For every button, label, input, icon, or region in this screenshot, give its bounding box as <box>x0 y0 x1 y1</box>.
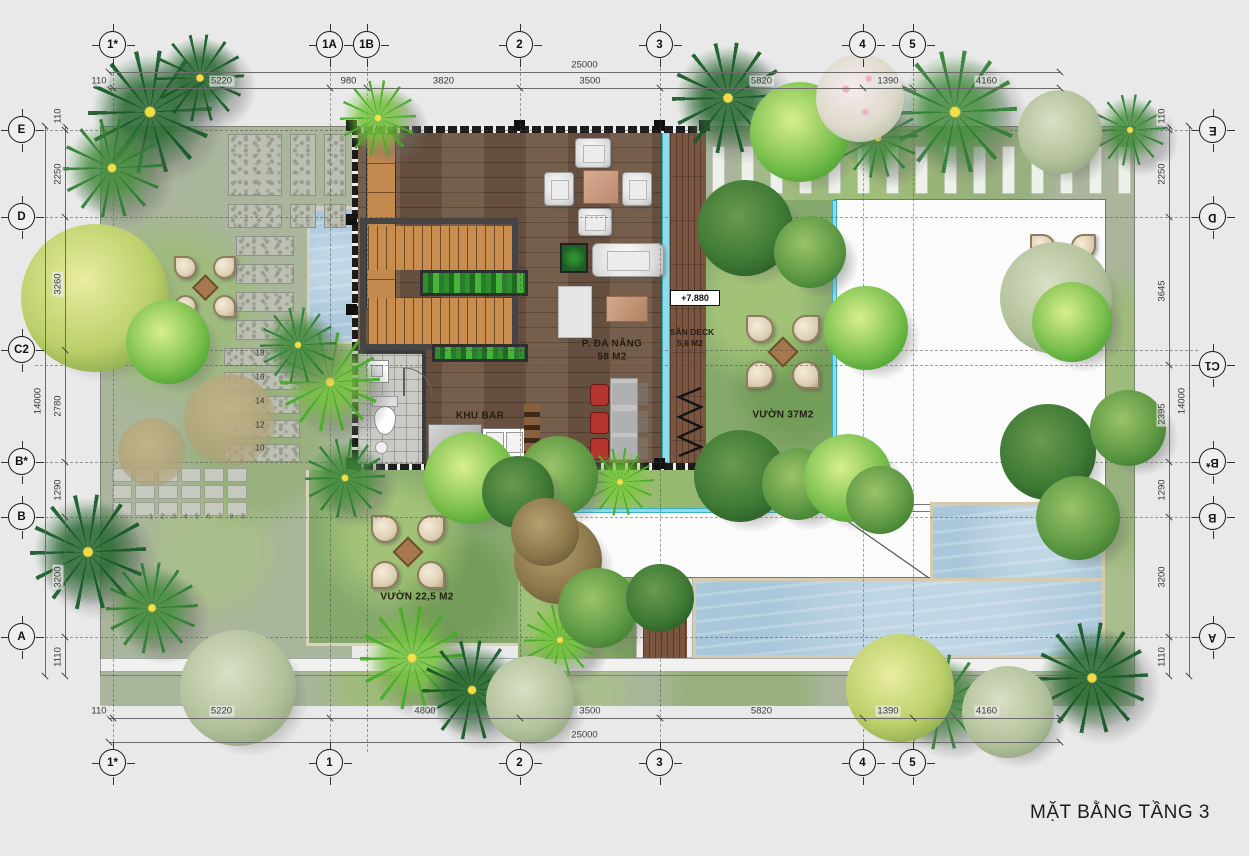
grid-bubble-B: B <box>1199 503 1226 530</box>
dim-left-seg-1290: 1290 <box>53 477 64 502</box>
dim-tick <box>1185 672 1192 679</box>
palm-tree <box>1036 622 1148 734</box>
tree-shadow <box>570 578 650 658</box>
bubble-tick <box>1213 441 1214 449</box>
dim-left-seg-3200: 3200 <box>53 564 64 589</box>
dim-bottom-seg-110: 110 <box>89 706 108 717</box>
small-paver <box>181 502 201 516</box>
elevation-marker: +7.880 <box>670 290 720 306</box>
bubble-tick <box>330 59 331 67</box>
bubble-tick <box>92 45 100 46</box>
tree-canopy <box>558 568 638 648</box>
palm-tree <box>360 606 464 710</box>
bubble-tick <box>1 517 9 518</box>
grid-axes-layer <box>0 0 1249 856</box>
bubble-tick <box>913 742 914 750</box>
path-step-number: 2 <box>161 514 165 521</box>
dim-tick <box>41 672 48 679</box>
stone-step <box>224 372 300 390</box>
floor-mat <box>558 286 592 338</box>
floor-drain <box>375 441 388 454</box>
grid-bubble-label: 3 <box>656 39 662 51</box>
dim-tick <box>61 126 68 133</box>
palm-tree <box>106 562 198 654</box>
dim-tick <box>516 84 523 91</box>
bubble-tick <box>22 496 23 504</box>
path-step-number: 5 <box>195 514 199 521</box>
dim-tick <box>1165 126 1172 133</box>
dim-right-total-line <box>1189 126 1190 676</box>
grid-bubble-label: 1* <box>107 757 118 769</box>
tree-shadow <box>1030 100 1114 184</box>
bubble-tick <box>309 45 317 46</box>
bubble-tick <box>113 777 114 785</box>
tree-shadow <box>762 92 862 192</box>
tree-canopy <box>1018 90 1102 174</box>
bubble-tick <box>842 45 850 46</box>
grid-bubble-E: E <box>8 116 35 143</box>
tree-shadow <box>292 342 392 442</box>
lower-roof-corner <box>835 505 930 577</box>
bar-stool-mat <box>612 383 648 405</box>
garden-chair <box>213 295 237 319</box>
dim-left-seg-2250: 2250 <box>53 161 64 186</box>
tree-shadow <box>786 226 858 298</box>
bar-stool <box>590 412 609 434</box>
stone-step <box>236 320 294 340</box>
vegetation-layer <box>0 0 1249 856</box>
bar-sink-basin-left <box>486 432 504 453</box>
bubble-tick <box>22 616 23 624</box>
structural-column <box>699 458 710 469</box>
bubble-tick <box>36 217 44 218</box>
small-paver <box>112 502 132 516</box>
palm-tree <box>422 640 522 740</box>
garden-chair <box>213 256 237 280</box>
toilet-tank <box>372 396 398 407</box>
grid-bubble-1*: 1* <box>99 31 126 58</box>
grid-bubble-5: 5 <box>899 31 926 58</box>
dim-tick <box>105 68 112 75</box>
path-step-number: 8 <box>230 514 234 521</box>
tree-shadow <box>317 448 397 528</box>
bar-planter <box>432 344 528 362</box>
bubble-tick <box>1192 217 1200 218</box>
tree-shadow <box>498 666 586 754</box>
grid-bubble-C2: C2 <box>8 336 35 363</box>
stair-step-number: 14 <box>256 397 265 406</box>
glass-railing-south <box>518 508 836 513</box>
dim-left-total: 14000 <box>33 386 44 416</box>
san-deck <box>670 132 706 464</box>
wall-north <box>352 126 706 133</box>
bubble-tick <box>330 742 331 750</box>
grid-line-col-1A <box>330 58 331 752</box>
tree-shadow <box>1102 400 1178 476</box>
paver-slat <box>770 146 783 194</box>
tree-shadow <box>905 60 1029 184</box>
stair-flight-upper <box>368 226 512 270</box>
small-paver <box>227 485 247 499</box>
paver-slat <box>1118 146 1131 194</box>
lower-roof-east <box>835 200 1105 505</box>
tree-shadow <box>138 310 222 394</box>
dim-tick <box>61 122 68 129</box>
bubble-tick <box>892 45 900 46</box>
grid-bubble-label: 1* <box>107 39 118 51</box>
grid-bubble-1*: 1* <box>99 749 126 776</box>
paver-slat <box>828 146 841 194</box>
tree-shadow <box>836 296 920 380</box>
dim-tick <box>909 714 916 721</box>
bar-table <box>610 378 638 460</box>
pool-deck-curb <box>636 578 693 658</box>
small-paver <box>112 468 132 482</box>
palm-tree <box>62 118 162 218</box>
tree-shadow <box>42 504 158 620</box>
grid-bubble-label: 5 <box>909 39 915 51</box>
garden-chair <box>1071 234 1096 259</box>
grid-line-row-A <box>35 637 1198 638</box>
bubble-tick <box>113 59 114 67</box>
tree-shadow <box>774 458 846 530</box>
dim-tick <box>1056 714 1063 721</box>
tree-canopy <box>1000 404 1096 500</box>
curtain-glass-wall <box>662 132 670 464</box>
garden-37 <box>706 200 836 470</box>
wall-west <box>352 126 358 470</box>
structural-column <box>346 120 357 131</box>
garden-chair <box>417 561 445 589</box>
palm-tree <box>340 80 416 156</box>
stone-step <box>236 264 294 284</box>
dim-tick <box>1165 361 1172 368</box>
grid-line-row-C2 <box>35 350 1198 351</box>
bubble-tick <box>842 763 850 764</box>
bubble-tick <box>36 637 44 638</box>
room-label-4: VƯỜN 37M2 <box>752 410 813 421</box>
palm-tree <box>260 307 336 383</box>
bubble-tick <box>22 476 23 484</box>
bubble-tick <box>1227 637 1235 638</box>
bubble-tick <box>22 144 23 152</box>
bar-stool-mat <box>612 437 648 459</box>
bubble-tick <box>22 231 23 239</box>
swimming-pool-arm <box>930 502 1105 581</box>
grid-bubble-label: 1 <box>326 757 332 769</box>
stair-step-number: 10 <box>256 444 265 453</box>
grid-bubble-D: D <box>1199 203 1226 230</box>
tree-canopy <box>962 666 1054 758</box>
stone-paver <box>324 134 346 196</box>
structural-column <box>346 458 357 469</box>
stair-flight-lower <box>368 298 512 344</box>
garden-table <box>767 336 798 367</box>
dim-tick <box>1056 84 1063 91</box>
bubble-tick <box>863 742 864 750</box>
grid-bubble-B*: B* <box>8 448 35 475</box>
structural-column <box>346 214 357 225</box>
site-boundary <box>100 126 1135 676</box>
bubble-tick <box>863 24 864 32</box>
garden-table <box>192 274 218 300</box>
dim-bottom-seg-1390: 1390 <box>875 706 900 717</box>
dim-bottom-seg-3500: 3500 <box>577 706 602 717</box>
tree-canopy <box>126 300 210 384</box>
dim-tick <box>1165 672 1172 679</box>
dim-top-seg-1390: 1390 <box>875 76 900 87</box>
glass-railing-east <box>832 200 837 512</box>
grid-bubble-label: 2 <box>516 757 522 769</box>
garden-chair <box>371 561 399 589</box>
stair-step-number: 18 <box>256 349 265 358</box>
grid-bubble-label: 3 <box>656 757 662 769</box>
stair-step-number: 16 <box>256 373 265 382</box>
dim-tick <box>1165 122 1172 129</box>
bubble-tick <box>660 24 661 32</box>
tree-shadow <box>434 650 534 750</box>
tree-canopy <box>697 180 793 276</box>
grid-bubble-2: 2 <box>506 749 533 776</box>
multipurpose-room-floor <box>358 132 662 464</box>
structures-layer <box>0 0 1249 856</box>
bubble-tick <box>639 45 647 46</box>
armchair-cushion <box>585 215 606 231</box>
armchair-north <box>575 138 611 168</box>
bubble-tick <box>36 462 44 463</box>
dim-tick <box>656 84 663 91</box>
stair-planter <box>420 270 528 296</box>
tree-canopy <box>180 630 296 746</box>
armchair-east <box>622 172 652 206</box>
wall-south <box>352 463 706 470</box>
bubble-tick <box>344 45 352 46</box>
dim-tick <box>105 738 112 745</box>
grid-bubble-label: 1B <box>359 39 374 51</box>
tree-shadow <box>1106 104 1178 176</box>
grid-line-row-D <box>35 217 1198 218</box>
dim-left-seg-110: 110 <box>53 106 64 125</box>
tree-canopy <box>486 656 574 744</box>
grid-bubble-1B: 1B <box>353 31 380 58</box>
tree-canopy <box>750 82 850 182</box>
bubble-tick <box>1192 130 1200 131</box>
grid-line-col-4 <box>863 58 864 752</box>
palm-tree <box>524 604 596 676</box>
grid-line-col-5 <box>913 58 914 752</box>
dim-tick <box>859 84 866 91</box>
bubble-tick <box>877 45 885 46</box>
armchair-west <box>544 172 574 206</box>
dim-tick <box>61 672 68 679</box>
grid-bubble-label: 5 <box>909 757 915 769</box>
bathroom <box>358 350 426 464</box>
paver-slat <box>915 146 928 194</box>
tree-shadow <box>118 572 210 664</box>
tree-canopy <box>816 54 904 142</box>
grid-line-row-C1 <box>35 365 1198 366</box>
tree-canopy <box>824 286 908 370</box>
garden-chair <box>792 361 820 389</box>
tree-canopy <box>424 432 516 524</box>
tree-shadow <box>494 466 566 538</box>
room-label-1: 58 M2 <box>597 352 626 363</box>
bubble-tick <box>1213 616 1214 624</box>
linework-overlay <box>0 0 1249 856</box>
bubble-tick <box>1192 365 1200 366</box>
dim-top-seg-3820: 3820 <box>431 76 456 87</box>
dim-tick <box>105 714 112 721</box>
tree-shadow <box>684 52 796 164</box>
paver-slat <box>857 146 870 194</box>
tree-canopy <box>626 564 694 632</box>
palm-tree <box>280 332 380 432</box>
bubble-tick <box>1213 231 1214 239</box>
tree-canopy <box>514 516 602 604</box>
tree-shadow <box>168 44 256 132</box>
armchair-cushion <box>551 180 569 200</box>
grid-bubble-label: B* <box>15 456 28 468</box>
dim-tick <box>1185 122 1192 129</box>
grid-line-col-1B <box>367 58 368 752</box>
armchair-south <box>578 208 612 236</box>
stone-paver <box>290 204 316 228</box>
small-paver <box>181 468 201 482</box>
grid-bubble-label: D <box>1208 211 1216 223</box>
bubble-tick <box>913 59 914 67</box>
south-garden-band <box>100 672 1135 706</box>
structural-column <box>514 120 525 131</box>
bathroom-door-arc <box>404 368 432 396</box>
small-paver <box>158 502 178 516</box>
room-label-0: P. ĐA NĂNG <box>582 339 642 350</box>
bubble-tick <box>113 742 114 750</box>
garden-chair <box>792 315 820 343</box>
dim-tick <box>41 122 48 129</box>
bubble-tick <box>1 637 9 638</box>
grid-bubble-1A: 1A <box>316 31 343 58</box>
grid-bubble-3: 3 <box>646 31 673 58</box>
structural-column <box>699 120 710 131</box>
dim-top-seg-4160: 4160 <box>974 76 999 87</box>
pool-side-garden <box>518 578 636 658</box>
bubble-tick <box>1227 462 1235 463</box>
room-label-6: VƯỜN 22,5 M2 <box>380 592 453 603</box>
path-step-number: 7 <box>218 514 222 521</box>
bubble-tick <box>534 45 542 46</box>
bubble-tick <box>674 763 682 764</box>
dim-bottom-seg-4160: 4160 <box>974 706 999 717</box>
garden-chair <box>746 315 774 343</box>
path-step-number: 6 <box>207 514 211 521</box>
dim-left-total-line <box>45 126 46 676</box>
dim-top-seg-5220: 5220 <box>209 76 234 87</box>
tree-shadow <box>272 317 348 393</box>
bubble-tick <box>913 777 914 785</box>
bar-counter <box>428 424 482 462</box>
grid-line-row-B <box>35 517 1198 518</box>
tree-canopy <box>762 448 834 520</box>
dim-top-total: 25000 <box>569 60 599 71</box>
bubble-tick <box>36 517 44 518</box>
small-paver <box>204 502 224 516</box>
paver-slat <box>1089 146 1102 194</box>
small-paver <box>204 485 224 499</box>
bubble-tick <box>913 24 914 32</box>
garden-table <box>392 536 423 567</box>
paver-slat <box>886 146 899 194</box>
bubble-tick <box>22 109 23 117</box>
bubble-tick <box>92 763 100 764</box>
dim-tick <box>105 84 112 91</box>
bubble-tick <box>22 364 23 372</box>
bubble-tick <box>1227 217 1235 218</box>
armchair-cushion <box>629 180 647 200</box>
grid-bubble-label: B <box>1208 511 1216 523</box>
dim-tick <box>109 84 116 91</box>
dim-top-seg-980: 980 <box>339 76 359 87</box>
garden-chair <box>371 515 399 543</box>
dim-top-seg-110: 110 <box>89 76 108 87</box>
dim-bottom-seg-5820: 5820 <box>749 706 774 717</box>
tree-shadow <box>372 616 476 720</box>
tree-canopy <box>1032 282 1112 362</box>
small-paver <box>227 502 247 516</box>
garden-chair <box>1030 234 1055 259</box>
dim-tick <box>516 714 523 721</box>
bubble-tick <box>22 196 23 204</box>
tree-shadow <box>1048 632 1160 744</box>
grid-bubble-B: B <box>8 503 35 530</box>
palm-tree <box>88 50 212 174</box>
grid-line-col-3 <box>660 58 661 752</box>
grid-bubble-label: E <box>1209 124 1217 136</box>
palm-tree <box>894 654 990 750</box>
bubble-tick <box>22 651 23 659</box>
bar-stool <box>590 438 609 460</box>
tree-shadow <box>850 108 930 188</box>
bubble-tick <box>367 24 368 32</box>
dim-tick <box>1165 633 1172 640</box>
left-garden <box>100 126 352 658</box>
garden-chair <box>746 361 774 389</box>
tree-canopy <box>482 456 554 528</box>
bubble-tick <box>660 777 661 785</box>
grid-line-col-2 <box>520 58 521 752</box>
tree-shadow <box>352 90 428 166</box>
bubble-tick <box>927 45 935 46</box>
grid-bubble-label: 4 <box>859 757 865 769</box>
paver-slat <box>712 146 725 194</box>
grid-bubble-label: 2 <box>516 39 522 51</box>
tree-shadow <box>709 190 805 286</box>
mid-garden-strip <box>518 470 836 512</box>
bubble-tick <box>1192 462 1200 463</box>
bubble-tick <box>22 329 23 337</box>
stone-step <box>236 236 294 256</box>
tree-canopy <box>1090 390 1166 466</box>
bubble-tick <box>1192 637 1200 638</box>
dim-bottom-total: 25000 <box>569 730 599 741</box>
tree-canopy <box>804 434 892 522</box>
paver-slat <box>1002 146 1015 194</box>
grid-bubble-E: E <box>1199 116 1226 143</box>
room-label-5: KHU BAR <box>456 411 504 422</box>
tree-shadow <box>100 60 224 184</box>
dim-right-seg-line <box>1169 126 1170 676</box>
room-label-2: SÂN DECK <box>670 327 714 337</box>
grid-bubble-1: 1 <box>316 749 343 776</box>
